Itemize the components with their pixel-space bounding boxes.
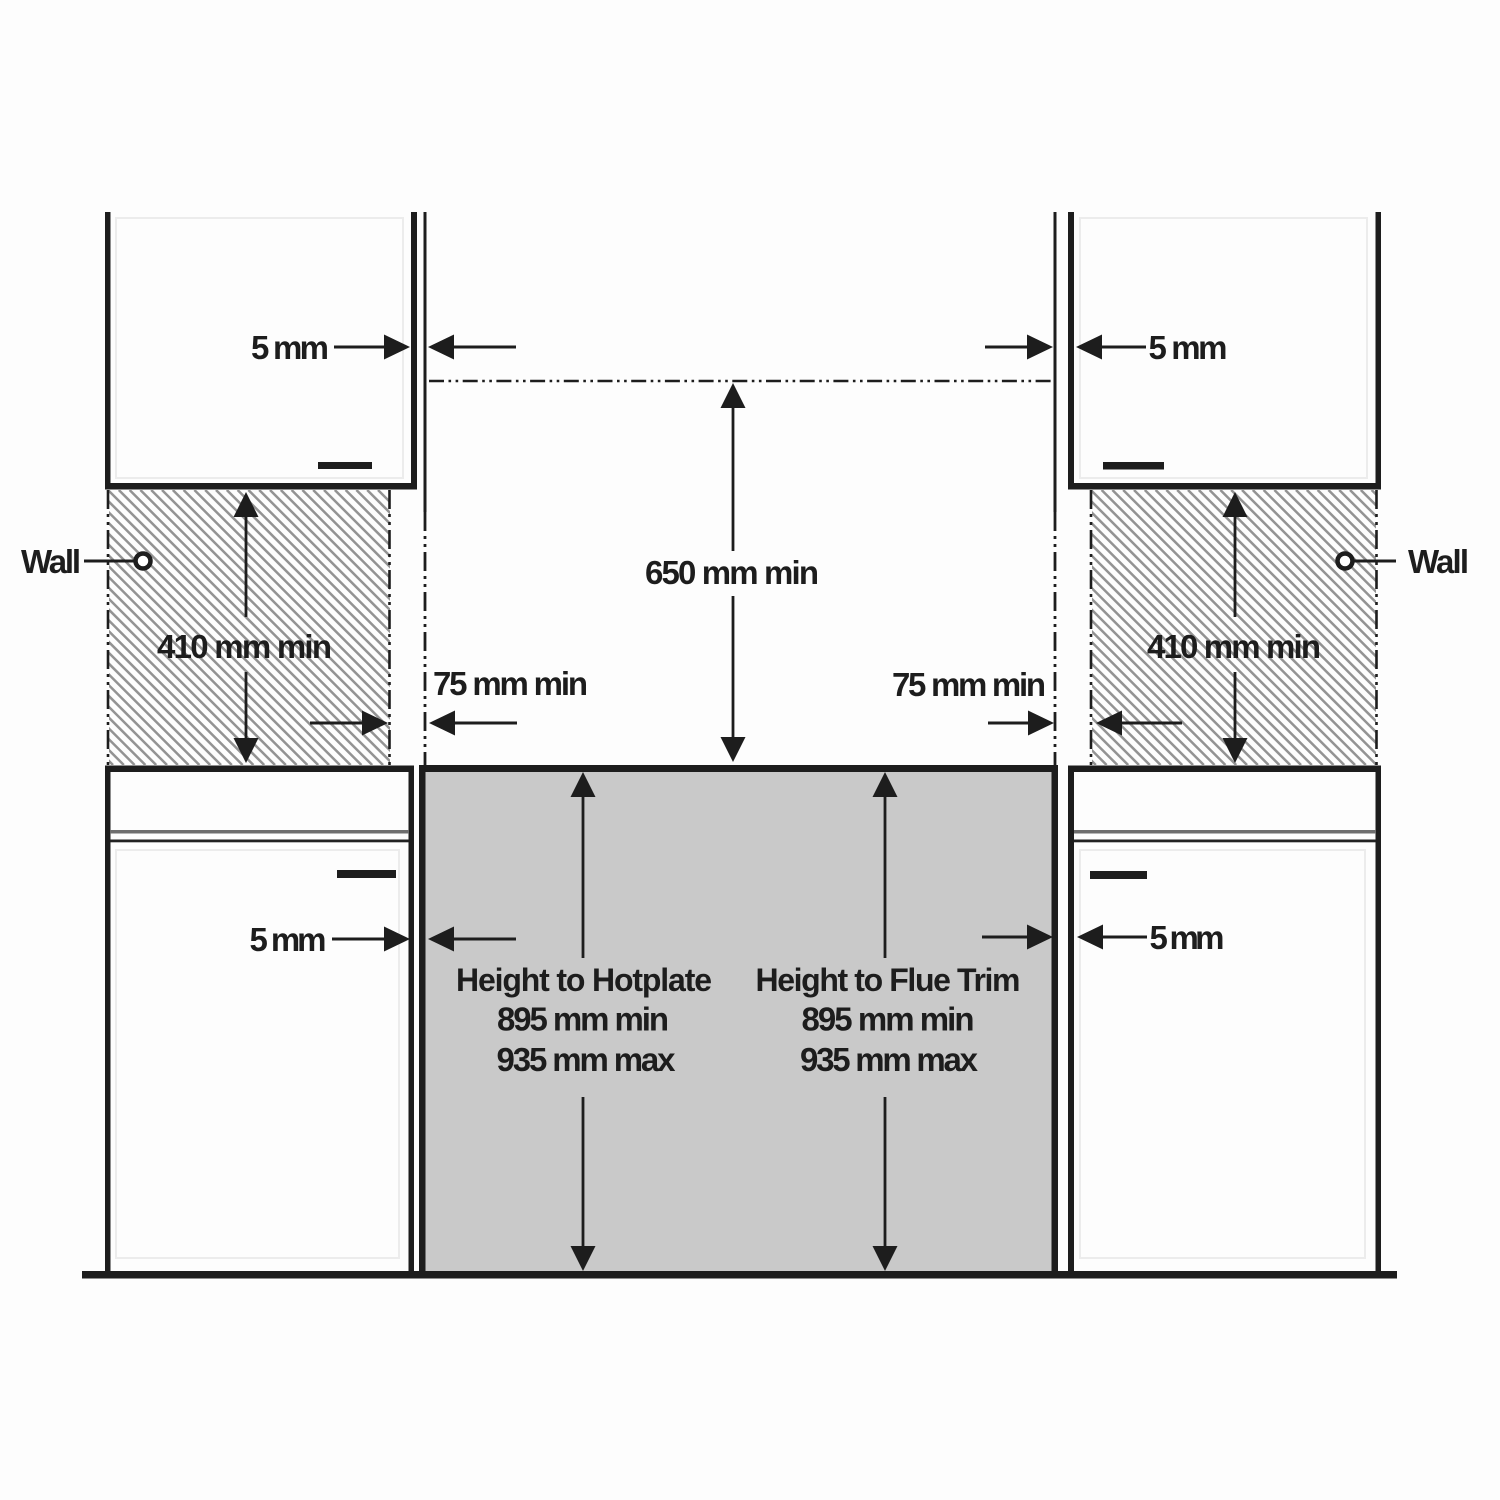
svg-text:895 mm min: 895 mm min [802, 1001, 975, 1038]
svg-text:5 mm: 5 mm [1149, 329, 1228, 366]
svg-text:650 mm min: 650 mm min [645, 554, 819, 591]
svg-text:410 mm min: 410 mm min [157, 628, 332, 665]
svg-text:Wall: Wall [1408, 543, 1469, 580]
svg-text:410 mm min: 410 mm min [1147, 628, 1321, 665]
svg-text:895 mm min: 895 mm min [497, 1001, 669, 1038]
svg-text:75 mm min: 75 mm min [892, 666, 1046, 703]
svg-text:Height to Hotplate: Height to Hotplate [456, 962, 712, 998]
svg-text:5 mm: 5 mm [1150, 919, 1225, 956]
svg-text:935 mm max: 935 mm max [800, 1041, 979, 1078]
svg-text:935 mm max: 935 mm max [497, 1041, 677, 1078]
svg-text:5 mm: 5 mm [250, 921, 327, 958]
svg-text:5 mm: 5 mm [251, 329, 329, 366]
svg-text:Height to Flue Trim: Height to Flue Trim [756, 962, 1021, 998]
svg-text:75 mm min: 75 mm min [433, 665, 588, 702]
svg-text:Wall: Wall [21, 543, 81, 580]
